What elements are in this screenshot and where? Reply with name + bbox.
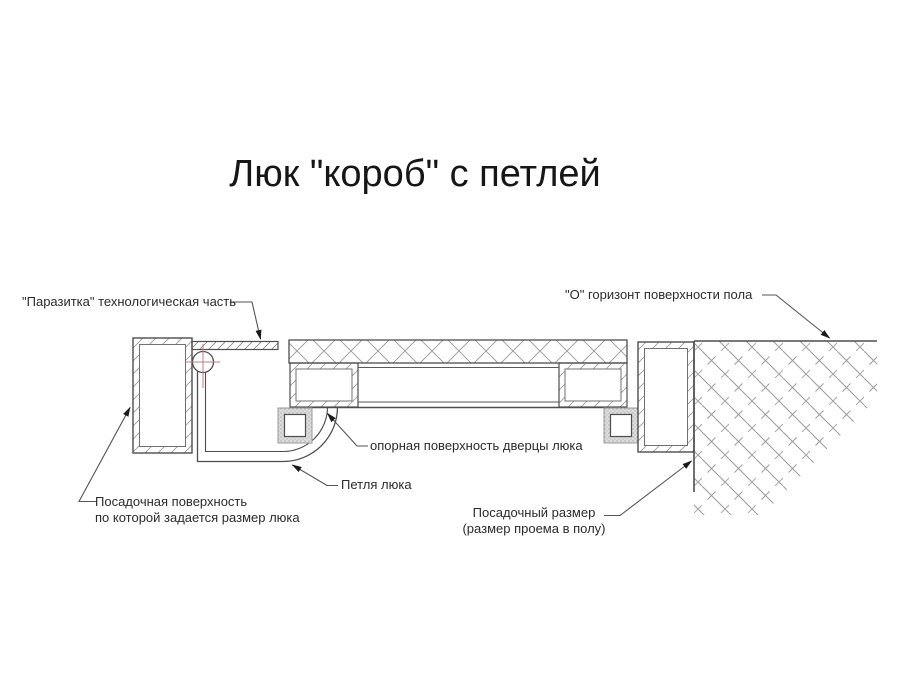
drawing-canvas: Люк "короб" с петлей "Паразитка" техноло… <box>0 0 900 700</box>
floor-ground <box>694 341 877 515</box>
leader-bearing-surface <box>328 414 369 447</box>
support-tube-right <box>604 408 638 443</box>
technological-plate <box>192 342 278 350</box>
label-parasitka: "Паразитка" технологическая часть <box>22 294 236 310</box>
door-tube-left <box>290 363 358 407</box>
drawing-title: Люк "короб" с петлей <box>60 153 770 196</box>
hatch-door-pan <box>290 363 627 408</box>
label-seating-surface: Посадочная поверхность по которой задает… <box>95 494 300 525</box>
label-hinge: Петля люка <box>341 477 412 493</box>
door-tube-right <box>559 363 627 407</box>
leader-seating-surface <box>79 408 130 502</box>
support-tube-left <box>278 408 312 443</box>
floor-hatch-fill <box>694 341 877 515</box>
label-seating-size-line1: Посадочный размер <box>458 505 610 521</box>
label-bearing-surface: опорная поверхность дверцы люка <box>370 438 583 454</box>
leader-hinge <box>293 465 339 486</box>
label-seating-surface-line1: Посадочная поверхность <box>95 494 300 510</box>
label-floor-horizon: "О" горизонт поверхности пола <box>565 287 752 303</box>
label-seating-size-line2: (размер проема в полу) <box>458 521 610 537</box>
hatch-section-drawing <box>0 0 900 700</box>
hatch-door-slab <box>289 340 627 363</box>
label-seating-size: Посадочный размер (размер проема в полу) <box>458 505 610 536</box>
label-seating-surface-line2: по которой задается размер люка <box>95 510 300 526</box>
right-frame-profile <box>638 342 694 452</box>
leader-seating-size <box>604 461 692 516</box>
left-frame-profile <box>133 338 192 453</box>
leader-floor-horizon <box>762 295 830 338</box>
